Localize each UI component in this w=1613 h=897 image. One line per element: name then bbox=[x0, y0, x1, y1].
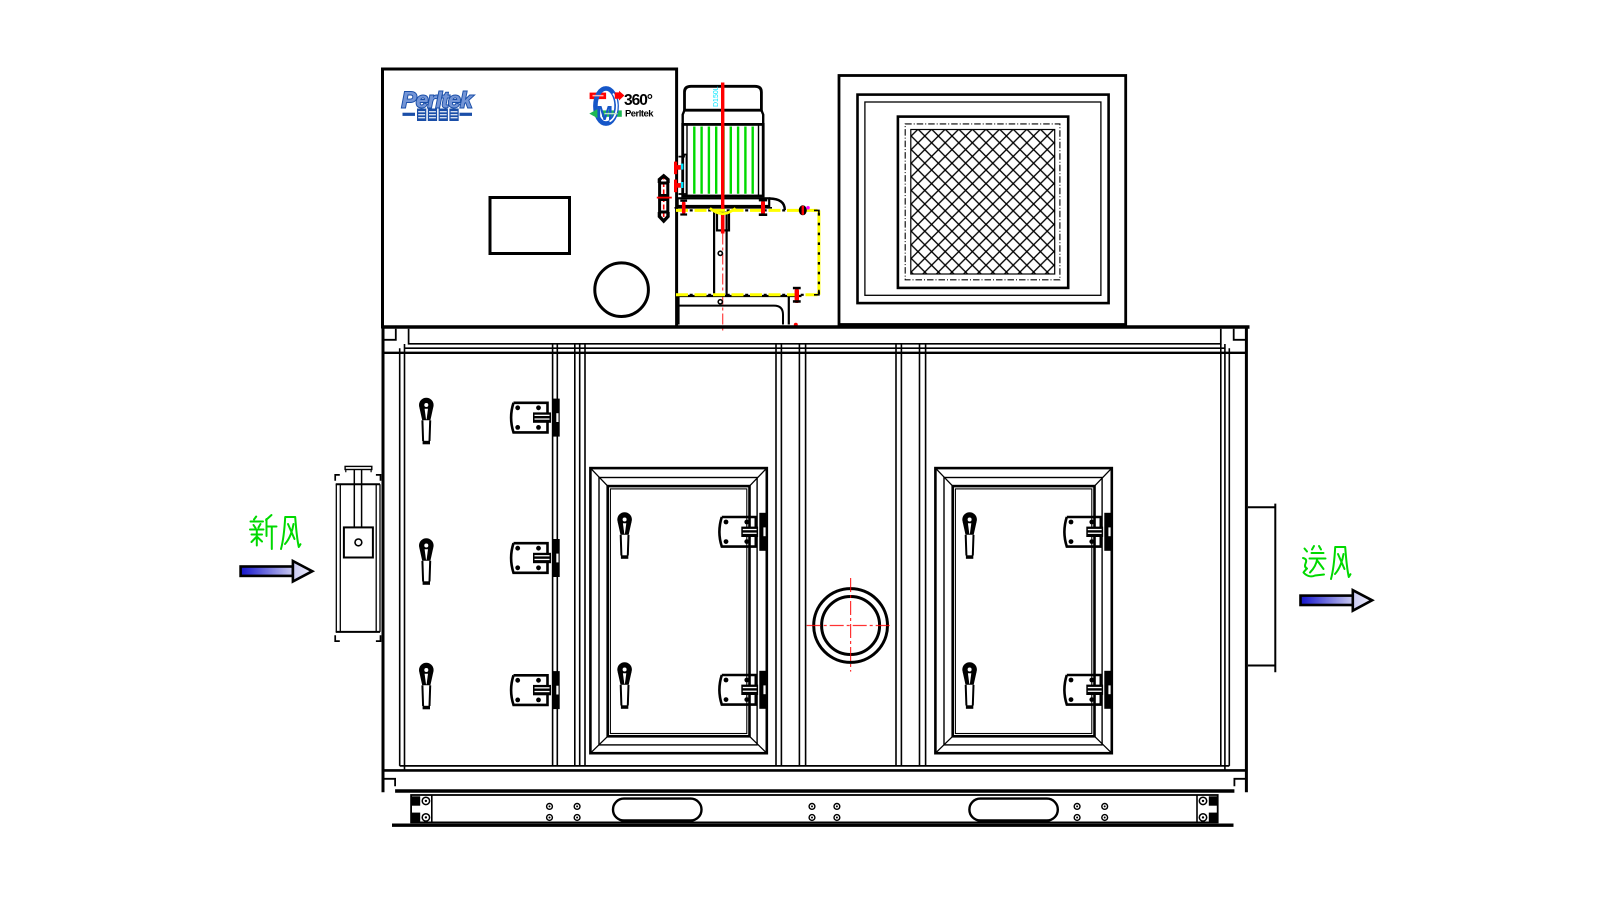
svg-text:Perltek: Perltek bbox=[402, 88, 474, 113]
svg-text:360°: 360° bbox=[624, 92, 653, 109]
svg-text:D150L: D150L bbox=[713, 86, 720, 107]
svg-text:Perltek: Perltek bbox=[625, 109, 654, 120]
